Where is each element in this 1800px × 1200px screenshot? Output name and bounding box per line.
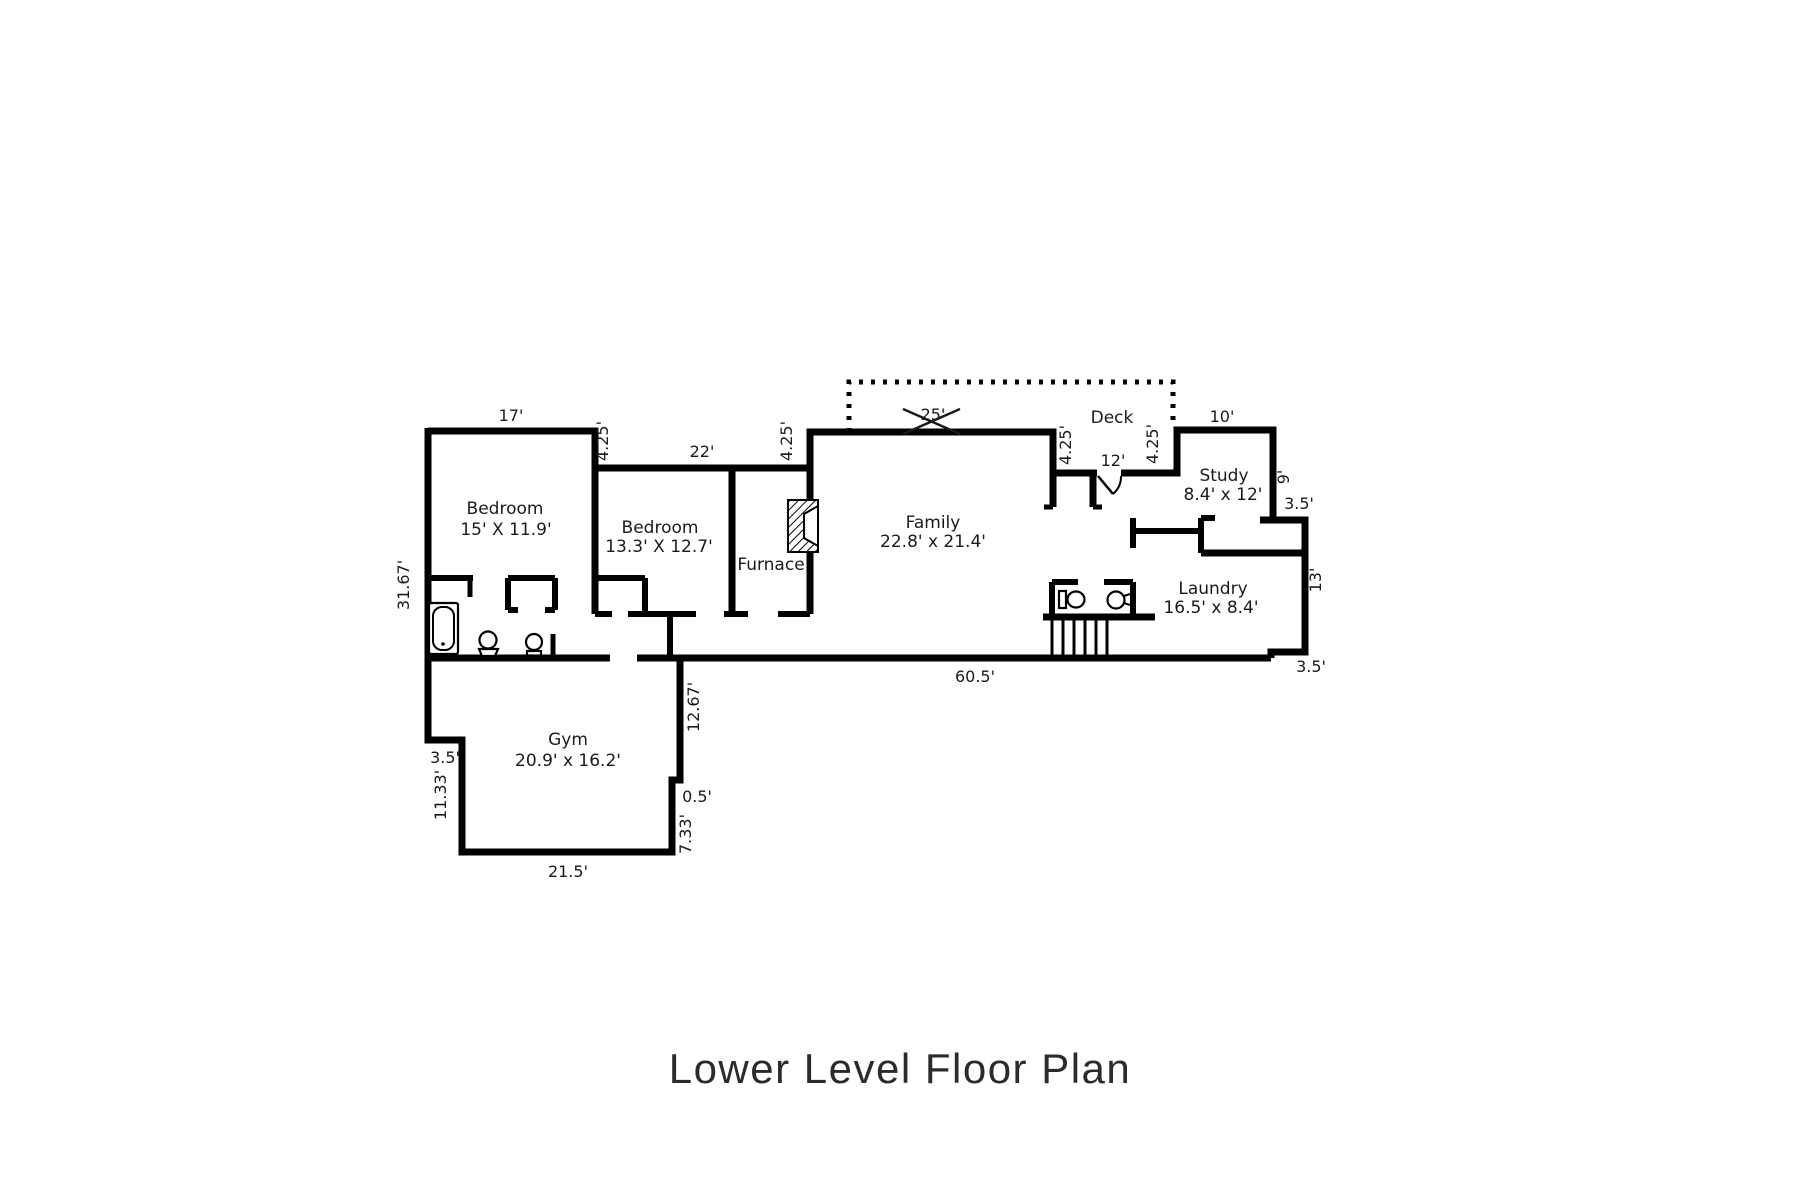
toilet-icon — [526, 634, 542, 656]
floor-plan-canvas: Bedroom 15' X 11.9' Bedroom 13.3' X 12.7… — [0, 0, 1800, 1200]
room-label-family: Family — [906, 513, 961, 533]
dim-bed1-top: 17' — [499, 406, 524, 425]
floor-plan-page: Bedroom 15' X 11.9' Bedroom 13.3' X 12.7… — [0, 0, 1800, 1200]
room-dims-bedroom2: 13.3' X 12.7' — [605, 537, 713, 557]
dim-family-top: 25' — [921, 405, 946, 424]
staircase — [1052, 617, 1107, 655]
study-partition — [1133, 518, 1215, 553]
dim-notch-right: 4.25' — [1143, 424, 1162, 464]
room-dims-family: 22.8' x 21.4' — [880, 532, 986, 552]
exterior-wall-top — [428, 431, 1097, 473]
pedestal-sink-icon — [479, 632, 498, 657]
powder-toilet-icon — [1059, 591, 1085, 608]
dim-gym-right-lower: 7.33' — [676, 814, 695, 854]
dim-bed2-top: 22' — [690, 442, 715, 461]
room-label-furnace: Furnace — [737, 555, 804, 575]
room-label-study: Study — [1199, 466, 1248, 486]
fireplace-icon — [788, 500, 818, 552]
dim-gym-right-upper: 12.67' — [684, 682, 703, 732]
dim-notch-width: 12' — [1101, 451, 1126, 470]
dim-gym-bottom: 21.5' — [548, 862, 588, 881]
dim-notch-left: 4.25' — [1056, 425, 1075, 465]
dim-gym-left-jog: 3.5' — [430, 748, 460, 767]
dim-bottom-main: 60.5' — [955, 667, 995, 686]
bathtub-icon — [429, 603, 458, 654]
dim-left-wall: 31.67' — [394, 560, 413, 610]
room-label-laundry: Laundry — [1178, 579, 1247, 599]
dim-study-jog: 3.5' — [1284, 494, 1314, 513]
room-dims-study: 8.4' x 12' — [1184, 485, 1263, 505]
exterior-wall-right — [1260, 520, 1305, 658]
room-label-gym: Gym — [548, 730, 588, 750]
hall-closet — [592, 578, 645, 614]
room-label-bedroom1: Bedroom — [467, 499, 544, 519]
room-dims-laundry: 16.5' x 8.4' — [1163, 598, 1258, 618]
walls — [428, 428, 1305, 852]
dim-study-right: 9' — [1274, 470, 1293, 485]
room-label-bedroom2: Bedroom — [622, 518, 699, 538]
linen-closet — [508, 578, 555, 610]
room-label-deck: Deck — [1091, 408, 1134, 428]
room-dims-bedroom1: 15' X 11.9' — [460, 520, 551, 540]
page-title: Lower Level Floor Plan — [669, 1045, 1132, 1092]
dim-step-a: 4.25' — [593, 421, 612, 461]
dim-right-wall: 13' — [1306, 568, 1325, 593]
dim-bottom-right-jog: 3.5' — [1296, 657, 1326, 676]
dim-step-b: 4.25' — [777, 421, 796, 461]
room-dims-gym: 20.9' x 16.2' — [515, 751, 621, 771]
powder-sink-icon — [1108, 592, 1131, 609]
entry-door-swing — [1098, 476, 1121, 494]
dim-gym-left-lower: 11.33' — [431, 770, 450, 820]
dim-study-top: 10' — [1210, 407, 1235, 426]
dim-gym-right-notch: 0.5' — [682, 787, 712, 806]
